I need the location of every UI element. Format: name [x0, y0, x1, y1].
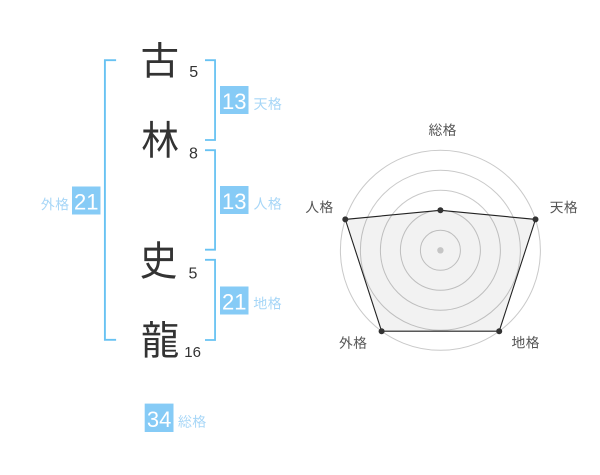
- svg-text:34: 34: [147, 407, 171, 432]
- svg-text:8: 8: [189, 145, 198, 162]
- svg-text:5: 5: [189, 265, 198, 282]
- svg-text:21: 21: [74, 190, 98, 215]
- svg-text:16: 16: [184, 344, 201, 361]
- svg-text:13: 13: [222, 189, 246, 214]
- svg-text:21: 21: [222, 290, 246, 315]
- svg-text:13: 13: [222, 89, 246, 114]
- svg-text:5: 5: [189, 64, 198, 81]
